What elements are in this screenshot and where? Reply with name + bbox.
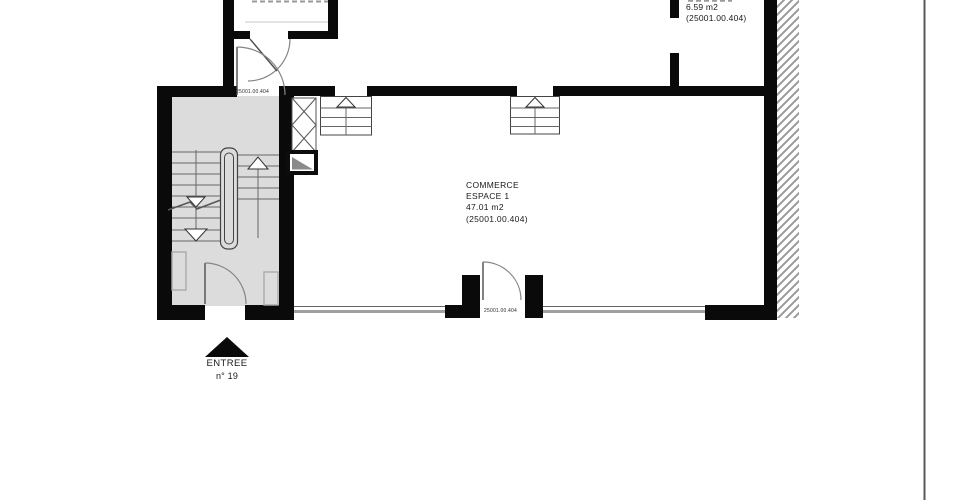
floor-plan-page: COMMERCE ESPACE 1 47.01 m2 (25001.00.404… [0, 0, 960, 500]
clipped-text-fragment [245, 1, 732, 22]
entrance-arrow-icon [205, 337, 249, 357]
handrail [221, 148, 238, 249]
room-name: COMMERCE [466, 180, 528, 191]
entry-steps-right [511, 97, 560, 135]
room-space: ESPACE 1 [466, 191, 528, 202]
shaft-elevator [292, 98, 316, 152]
room-area: 47.01 m2 [466, 202, 528, 213]
top-right-room-label: 6.59 m2 (25001.00.404) [686, 2, 746, 24]
entrance-text: ENTREE [197, 358, 257, 371]
hatched-party-wall [777, 0, 799, 318]
entry-steps-left [321, 97, 372, 136]
floor-plan-drawing [0, 0, 960, 500]
shaft-duct [288, 152, 316, 173]
entrance-label: ENTREE n° 19 [197, 358, 257, 382]
room-code: (25001.00.404) [466, 214, 528, 225]
room-area: 6.59 m2 [686, 2, 746, 13]
room-code: (25001.00.404) [686, 13, 746, 24]
entrance-number: n° 19 [197, 371, 257, 383]
door-code-label-top: 25001.00.404 [236, 89, 269, 96]
door-code-label-bottom: 25001.00.404 [484, 308, 517, 315]
commerce-room-label: COMMERCE ESPACE 1 47.01 m2 (25001.00.404… [466, 180, 528, 225]
